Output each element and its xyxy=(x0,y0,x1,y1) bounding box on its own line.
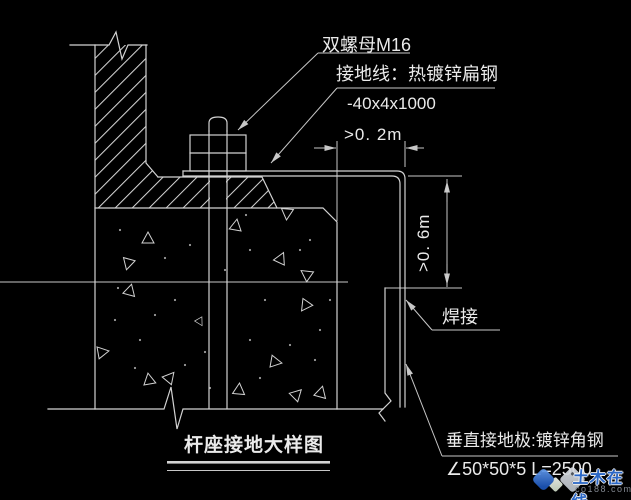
aggregate-dots xyxy=(114,214,331,389)
vertical-electrode-break-line xyxy=(379,288,391,421)
label-underlines xyxy=(167,53,618,471)
pole-base-section xyxy=(70,32,277,409)
label-ground-wire: 接地线：热镀锌扁钢 xyxy=(336,64,498,85)
leader-ground-wire xyxy=(271,88,337,163)
dim-horizontal-clearance: >0. 2m xyxy=(344,125,402,145)
concrete-foundation xyxy=(0,208,383,429)
label-weld: 焊接 xyxy=(442,307,478,328)
leader-weld xyxy=(406,300,432,330)
label-ground-wire-spec: -40x4x1000 xyxy=(347,94,436,114)
cad-drawing xyxy=(0,0,631,500)
aggregate-triangles xyxy=(97,208,328,401)
anchor-bolt xyxy=(190,117,246,408)
cad-canvas: 双螺母M16 接地线：热镀锌扁钢 -40x4x1000 >0. 2m >0. 6… xyxy=(0,0,631,500)
leader-nut xyxy=(238,53,318,130)
watermark-brand-name: 土木在线 xyxy=(570,464,631,500)
title-underline-thick xyxy=(167,461,330,464)
foundation-outline xyxy=(95,208,337,409)
drawing-title: 杆座接地大样图 xyxy=(184,435,324,457)
foundation-bottom-break-line xyxy=(48,387,383,429)
watermark-logo: 土木在线 co188.com xyxy=(522,456,631,500)
bolt-cap xyxy=(209,117,227,131)
dim-burial-depth: >0. 6m xyxy=(414,188,434,298)
pole-inner-edge xyxy=(146,45,158,177)
label-vertical-electrode: 垂直接地极:镀锌角钢 xyxy=(446,431,604,451)
watermark-domain: co188.com xyxy=(575,484,631,494)
label-double-nut: 双螺母M16 xyxy=(322,35,411,56)
flat-steel-inner xyxy=(183,176,400,407)
leader-electrode xyxy=(406,364,442,456)
